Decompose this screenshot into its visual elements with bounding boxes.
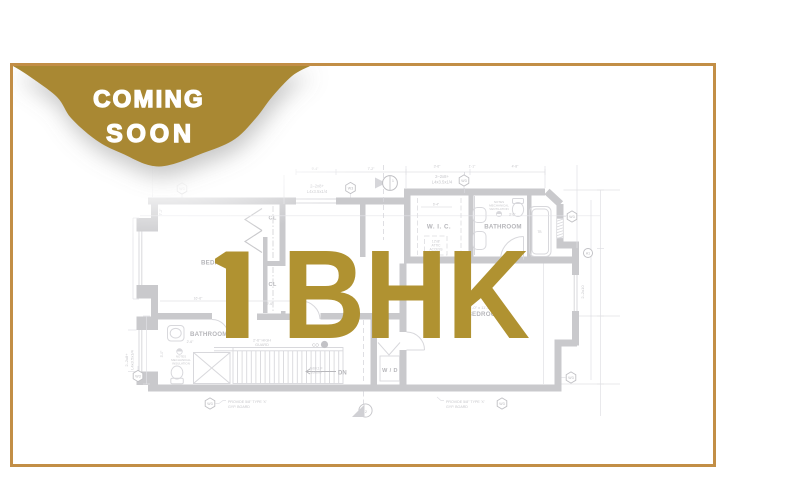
svg-text:SOON: SOON (106, 120, 195, 148)
svg-text:COMING: COMING (93, 86, 205, 113)
